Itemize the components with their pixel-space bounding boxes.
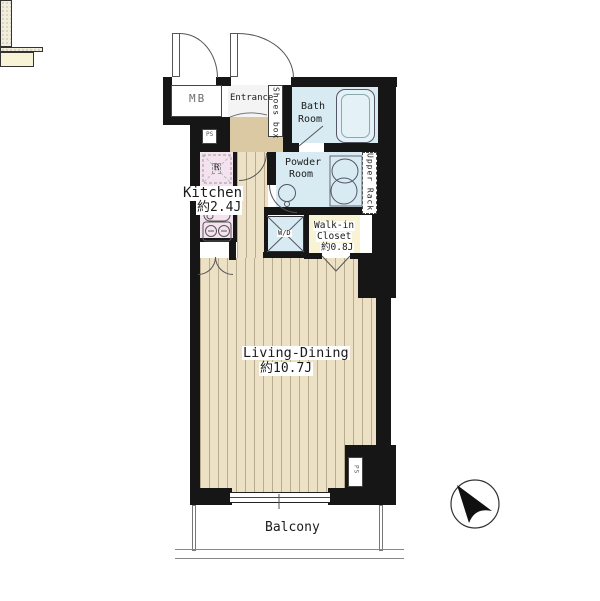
- shoes-box-label: Shoes box: [270, 87, 280, 139]
- wall-corridor-powder: [267, 152, 276, 185]
- entrance-door-arc: [238, 33, 294, 78]
- wall-right-bath: [378, 85, 396, 152]
- kitchen-size-label: 約2.4J: [196, 201, 242, 215]
- wall-right-upper: [377, 152, 396, 214]
- wall-washer-left: [264, 215, 268, 255]
- walk-in-closet-size-label: 約0.8J: [320, 243, 354, 253]
- walk-in-closet-label-2: Closet: [316, 232, 352, 242]
- bath-room-label-2: Room: [297, 115, 323, 126]
- living-dining-label: Living-Dining: [242, 346, 350, 360]
- bathtub-inner: [341, 94, 370, 138]
- wall-closet-bottom-left: [304, 253, 322, 259]
- wall-bath-powder-b: [324, 143, 378, 152]
- powder-room-label-1: Powder: [284, 158, 322, 169]
- balcony-post-left: [192, 505, 196, 551]
- closet-hatch-strip: [0, 0, 12, 47]
- ps-top-label: PS: [205, 132, 214, 138]
- wall-right-closet: [372, 214, 396, 258]
- wall-powder-bottom: [264, 207, 372, 215]
- mb-door-arc: [180, 33, 218, 78]
- bath-room-label-1: Bath: [300, 102, 326, 113]
- wall-mass-top-right: [358, 256, 396, 298]
- entrance-door-leaf: [230, 33, 238, 77]
- balcony-rail-line-1: [175, 549, 404, 550]
- powder-room-label-2: Room: [288, 170, 314, 181]
- living-dining-size-label: 約10.7J: [259, 362, 313, 376]
- mb-label: MB: [188, 93, 207, 105]
- wall-washer-closet: [304, 215, 309, 253]
- wall-bath-left: [283, 85, 292, 143]
- balcony-label: Balcony: [264, 521, 321, 535]
- upper-rack-label: Upper Rack: [364, 153, 374, 211]
- fridge-label: R: [212, 163, 221, 174]
- wall-bath-powder-a: [283, 143, 299, 152]
- kitchen-label: Kitchen: [182, 186, 243, 201]
- balcony-window: [230, 492, 330, 503]
- balcony-post-right: [379, 505, 383, 551]
- washer-dryer-label: W/D: [277, 230, 292, 237]
- wall-bottom-left: [190, 488, 232, 505]
- north-arrow-icon: [448, 477, 503, 532]
- walk-in-closet-label-1: Walk-in: [313, 221, 355, 231]
- wall-washer-bottom: [263, 252, 306, 258]
- balcony-rail-line-2: [175, 558, 404, 559]
- mb-door-leaf: [172, 33, 180, 77]
- entrance-label: Entrance: [229, 94, 274, 103]
- wall-right-living: [376, 298, 391, 448]
- floor-plan: MB PS Entrance Shoes box Bath Room Powde…: [0, 0, 600, 601]
- hall-floor: [228, 117, 268, 154]
- hall-closet: [0, 52, 34, 67]
- window-track-line: [230, 497, 330, 498]
- ps-bottom-label: PS: [351, 465, 359, 474]
- wall-bottom-mid: [328, 488, 348, 505]
